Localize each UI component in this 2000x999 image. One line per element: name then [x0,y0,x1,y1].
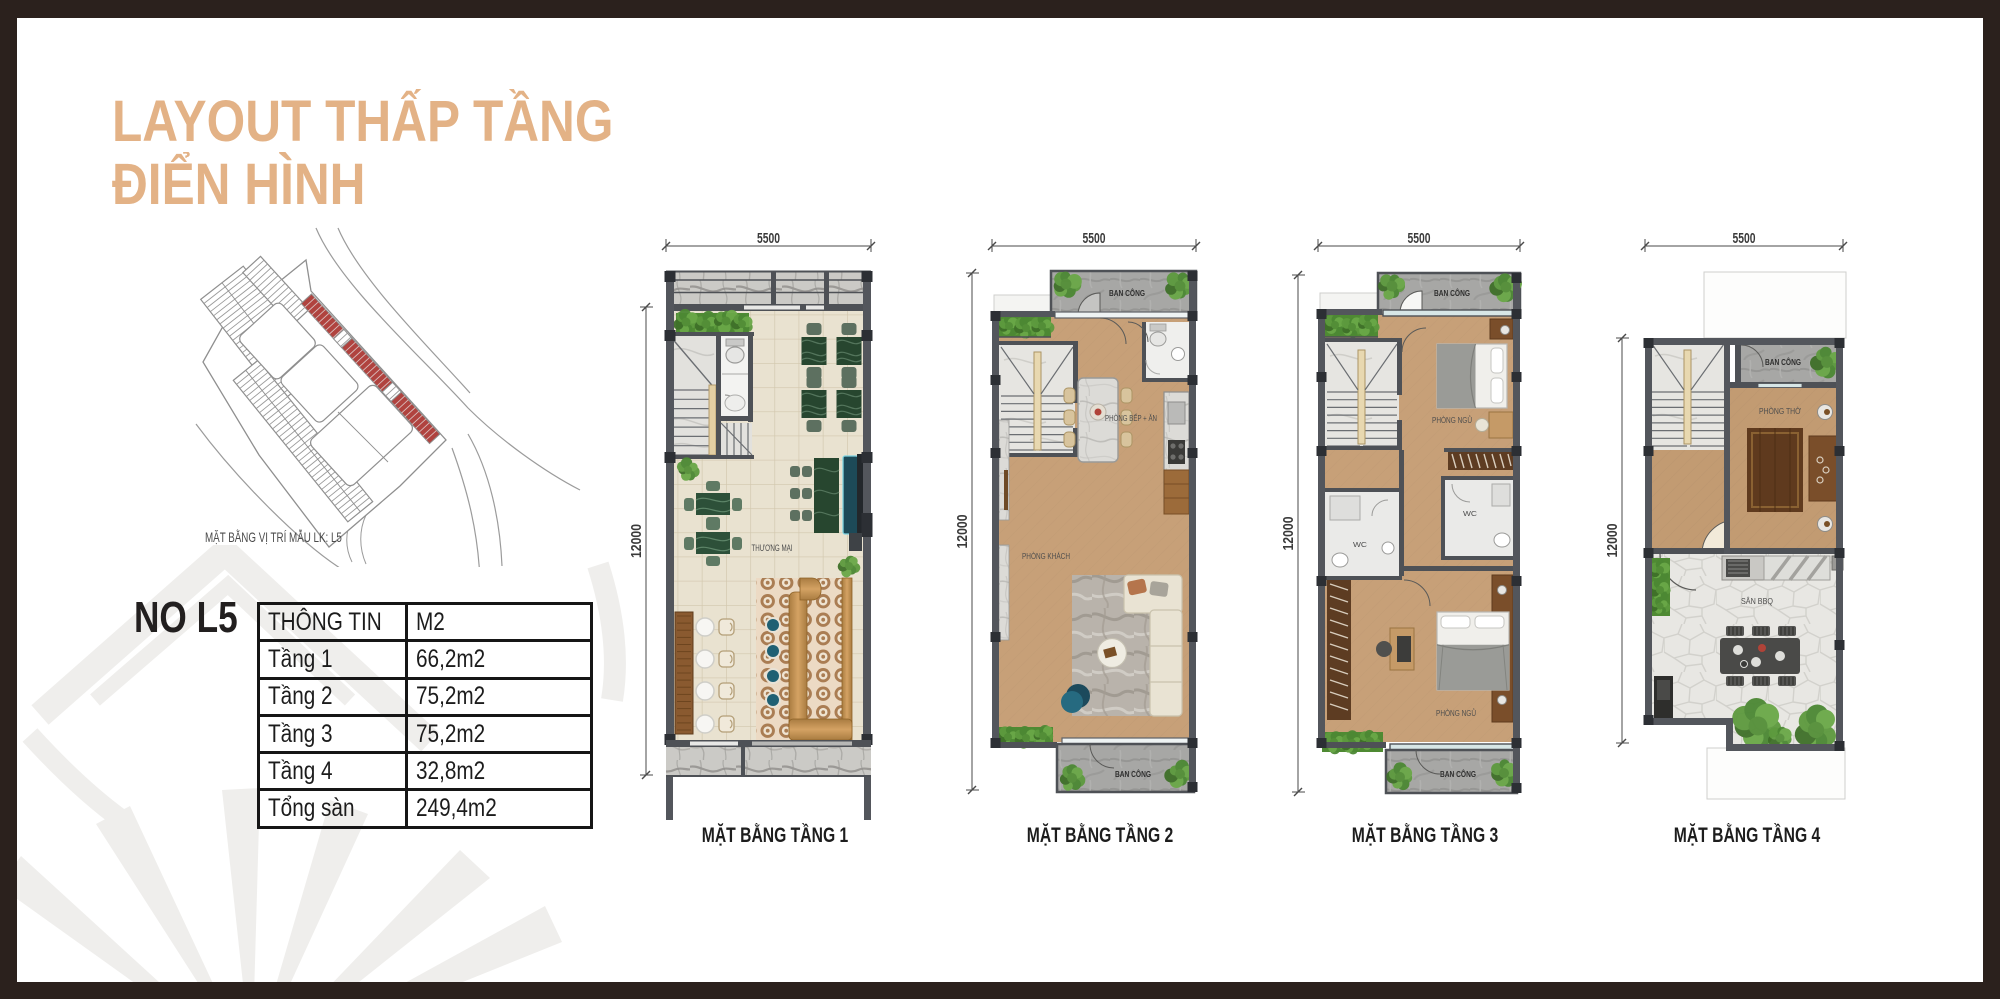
svg-text:WC: WC [1353,540,1368,549]
svg-text:PHÒNG NGỦ: PHÒNG NGỦ [1432,414,1472,425]
svg-text:BAN CÔNG: BAN CÔNG [1109,287,1145,298]
svg-text:SÂN BBQ: SÂN BBQ [1741,596,1773,606]
svg-text:12000: 12000 [955,515,971,549]
svg-text:BAN CÔNG: BAN CÔNG [1765,356,1801,367]
svg-text:PHÒNG NGỦ: PHÒNG NGỦ [1436,707,1476,718]
svg-text:12000: 12000 [630,524,645,558]
svg-text:5500: 5500 [1083,231,1106,247]
svg-text:BAN CÔNG: BAN CÔNG [1434,287,1470,298]
svg-text:WC: WC [1463,509,1478,518]
svg-text:PHÒNG BẾP + ĂN: PHÒNG BẾP + ĂN [1105,413,1157,423]
svg-text:BAN CÔNG: BAN CÔNG [1115,768,1151,779]
svg-text:5500: 5500 [757,231,780,247]
svg-text:12000: 12000 [1605,524,1621,558]
svg-text:BAN CÔNG: BAN CÔNG [1440,768,1476,779]
svg-text:5500: 5500 [1733,231,1756,247]
svg-text:PHÒNG THỜ: PHÒNG THỜ [1759,406,1802,416]
svg-text:THƯƠNG MẠI: THƯƠNG MẠI [752,543,793,553]
svg-text:5500: 5500 [1408,231,1431,247]
svg-text:PHÒNG KHÁCH: PHÒNG KHÁCH [1022,551,1070,561]
svg-text:12000: 12000 [1281,517,1297,551]
